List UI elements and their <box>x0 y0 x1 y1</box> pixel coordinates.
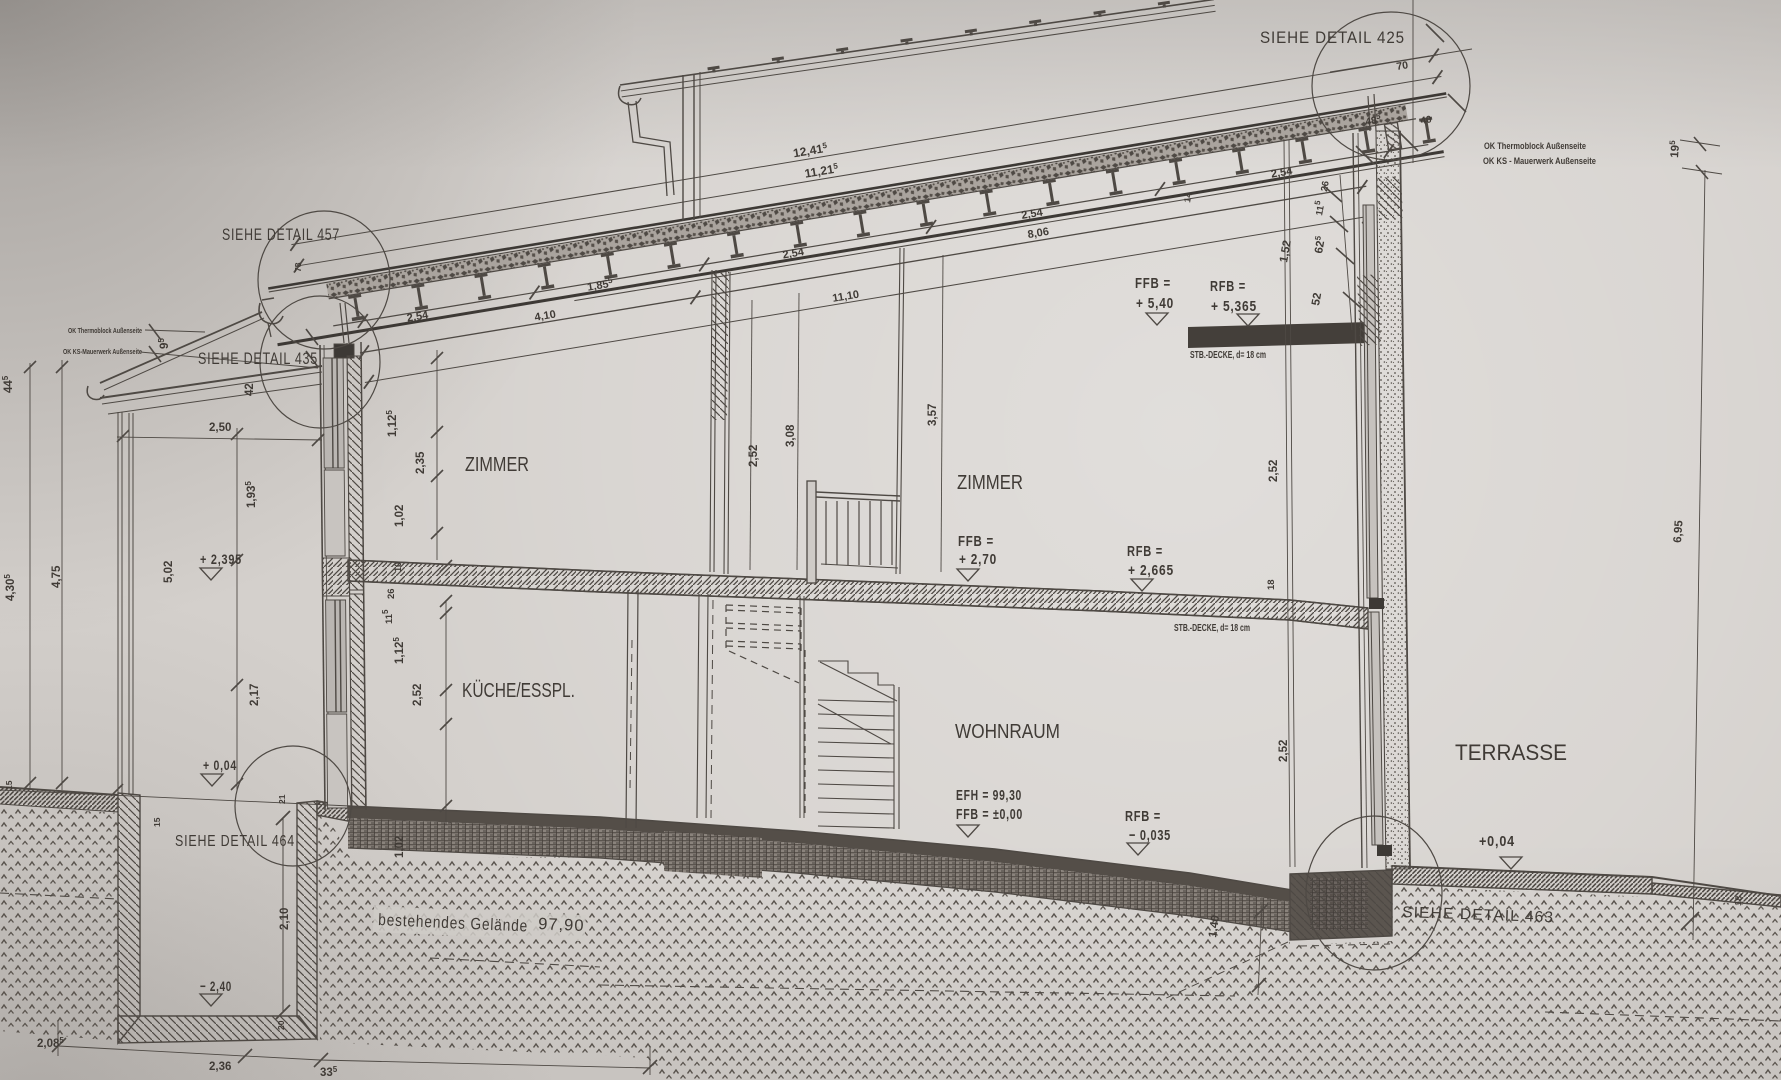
svg-text:RFB =: RFB = <box>1210 278 1246 295</box>
svg-text:FFB =: FFB = <box>1135 275 1171 292</box>
svg-text:10: 10 <box>393 562 403 572</box>
svg-text:+ 0,04: + 0,04 <box>203 757 237 773</box>
svg-text:42: 42 <box>244 383 256 396</box>
svg-text:+ 5,365: + 5,365 <box>1211 298 1257 315</box>
svg-text:26: 26 <box>386 588 397 599</box>
svg-text:3,57: 3,57 <box>927 404 939 426</box>
svg-text:SIEHE DETAIL 464: SIEHE DETAIL 464 <box>175 833 295 850</box>
svg-text:ZIMMER: ZIMMER <box>465 454 529 476</box>
svg-text:5,02: 5,02 <box>163 561 175 583</box>
svg-text:EFH = 99,30: EFH = 99,30 <box>956 787 1022 804</box>
svg-text:20: 20 <box>276 1020 286 1030</box>
svg-text:40: 40 <box>1420 114 1433 127</box>
svg-text:− 2,40: − 2,40 <box>200 978 232 994</box>
svg-text:− 0,035: − 0,035 <box>1129 827 1171 844</box>
svg-text:2,36: 2,36 <box>209 1061 231 1073</box>
svg-text:2,52: 2,52 <box>748 445 760 467</box>
svg-text:STB.-DECKE, d= 18 cm: STB.-DECKE, d= 18 cm <box>1174 623 1250 634</box>
svg-text:SIEHE DETAIL 457: SIEHE DETAIL 457 <box>222 225 340 244</box>
svg-text:14: 14 <box>1182 192 1194 204</box>
svg-text:+0,04: +0,04 <box>1479 833 1515 850</box>
svg-text:70: 70 <box>1396 59 1410 73</box>
svg-text:2,52: 2,52 <box>1278 740 1290 762</box>
svg-text:SIEHE DETAIL 435: SIEHE DETAIL 435 <box>198 349 318 368</box>
svg-text:FFB = ±0,00: FFB = ±0,00 <box>956 806 1023 823</box>
svg-text:OK KS - Mauerwerk Außenseite: OK KS - Mauerwerk Außenseite <box>1483 156 1596 167</box>
svg-text:FFB =: FFB = <box>958 533 994 550</box>
svg-text:+ 5,40: + 5,40 <box>1136 295 1174 312</box>
svg-text:+ 2,665: + 2,665 <box>1128 562 1174 579</box>
svg-text:+ 2,395: + 2,395 <box>200 551 242 567</box>
svg-text:4,75: 4,75 <box>51 565 63 588</box>
svg-text:+ 2,70: + 2,70 <box>959 551 997 568</box>
svg-text:18: 18 <box>1266 579 1277 590</box>
svg-text:18: 18 <box>1733 895 1744 906</box>
svg-text:OK Thermoblock Außenseite: OK Thermoblock Außenseite <box>68 326 142 335</box>
svg-text:15: 15 <box>152 817 162 827</box>
svg-text:6,95: 6,95 <box>1672 519 1686 543</box>
svg-text:2,10: 2,10 <box>279 908 291 930</box>
svg-text:26: 26 <box>1319 180 1332 192</box>
svg-text:WOHNRAUM: WOHNRAUM <box>955 721 1060 743</box>
svg-text:2,17: 2,17 <box>249 684 261 706</box>
svg-text:TERRASSE: TERRASSE <box>1455 740 1567 765</box>
svg-text:KÜCHE/ESSPL.: KÜCHE/ESSPL. <box>462 680 575 702</box>
svg-text:ZIMMER: ZIMMER <box>957 472 1023 494</box>
svg-text:3,08: 3,08 <box>785 424 797 447</box>
svg-text:97,90: 97,90 <box>538 915 585 935</box>
svg-text:78: 78 <box>293 262 303 272</box>
svg-text:STB.-DECKE, d= 18 cm: STB.-DECKE, d= 18 cm <box>1190 350 1266 361</box>
svg-text:1,02: 1,02 <box>394 836 406 858</box>
svg-text:21: 21 <box>277 794 287 804</box>
svg-text:RFB =: RFB = <box>1125 808 1161 825</box>
svg-text:SIEHE DETAIL 425: SIEHE DETAIL 425 <box>1260 28 1405 47</box>
svg-text:2,50: 2,50 <box>209 422 231 434</box>
svg-text:2,52: 2,52 <box>1268 460 1280 482</box>
svg-text:OK Thermoblock Außenseite: OK Thermoblock Außenseite <box>1484 141 1586 152</box>
svg-text:2,35: 2,35 <box>415 451 427 474</box>
svg-text:15: 15 <box>4 780 14 790</box>
svg-text:2,52: 2,52 <box>412 684 424 706</box>
svg-text:1,02: 1,02 <box>394 505 406 527</box>
svg-text:OK KS-Mauerwerk Außenseite: OK KS-Mauerwerk Außenseite <box>63 347 142 356</box>
svg-text:RFB =: RFB = <box>1127 543 1163 560</box>
svg-text:52: 52 <box>1310 292 1324 307</box>
